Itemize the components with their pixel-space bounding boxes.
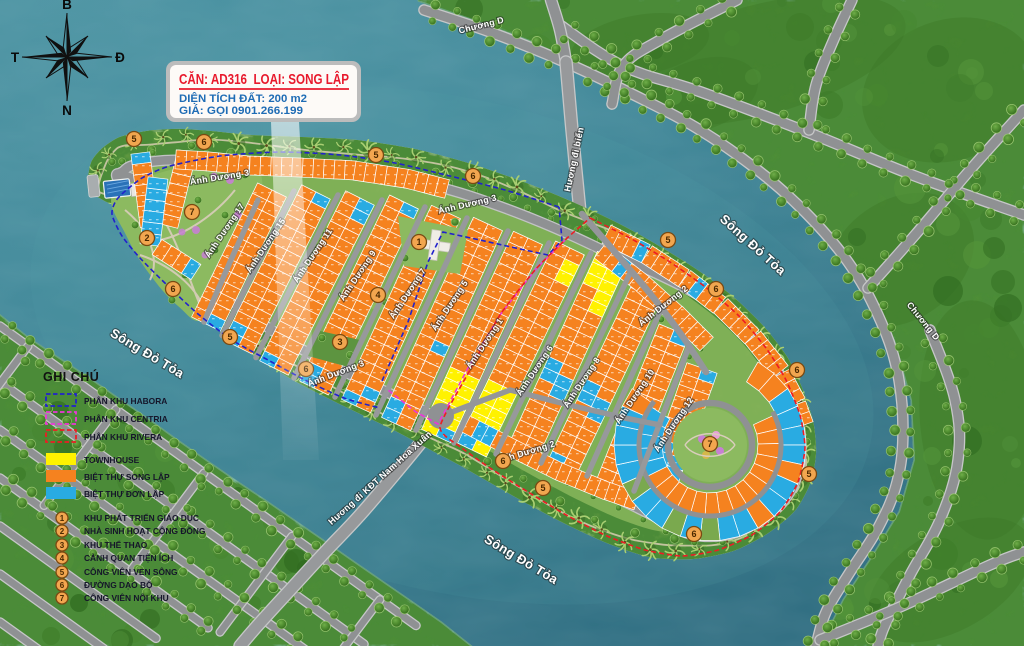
svg-text:KHU THỂ THAO: KHU THỂ THAO: [84, 539, 148, 550]
svg-text:NHÀ SINH HOẠT CỘNG ĐỒNG: NHÀ SINH HOẠT CỘNG ĐỒNG: [84, 525, 205, 536]
svg-text:1: 1: [60, 514, 65, 523]
svg-text:PHÂN KHU RIVERA: PHÂN KHU RIVERA: [84, 431, 162, 442]
svg-text:6: 6: [170, 284, 175, 294]
svg-text:CÔNG VIÊN NỘI KHU: CÔNG VIÊN NỘI KHU: [84, 592, 169, 603]
svg-text:3: 3: [60, 541, 65, 550]
svg-text:5: 5: [373, 150, 378, 160]
svg-text:7: 7: [189, 207, 194, 217]
svg-text:2: 2: [144, 233, 149, 243]
svg-text:TOWNHOUSE: TOWNHOUSE: [84, 455, 140, 465]
svg-text:5: 5: [131, 134, 136, 144]
svg-text:CẢNH QUAN TIỆN ÍCH: CẢNH QUAN TIỆN ÍCH: [84, 552, 173, 563]
svg-text:6: 6: [201, 137, 206, 147]
svg-text:4: 4: [60, 554, 65, 563]
svg-text:5: 5: [665, 235, 670, 245]
svg-text:CĂN: AD316 LOẠI: SONG LẬP: CĂN: AD316 LOẠI: SONG LẬP: [179, 70, 349, 88]
svg-text:BIỆT THỰ ĐƠN LẬP: BIỆT THỰ ĐƠN LẬP: [84, 488, 165, 499]
svg-text:KHU PHÁT TRIỂN GIÁO DỤC: KHU PHÁT TRIỂN GIÁO DỤC: [84, 512, 199, 523]
svg-text:ĐƯỜNG DẠO BỘ: ĐƯỜNG DẠO BỘ: [84, 579, 153, 590]
svg-text:GHI CHÚ: GHI CHÚ: [43, 369, 99, 384]
svg-text:4: 4: [375, 290, 380, 300]
svg-text:7: 7: [60, 594, 65, 603]
svg-text:5: 5: [806, 469, 811, 479]
svg-text:6: 6: [470, 171, 475, 181]
svg-text:5: 5: [60, 568, 65, 577]
svg-text:PHÂN KHU HABORA: PHÂN KHU HABORA: [84, 395, 167, 406]
svg-text:1: 1: [416, 237, 421, 247]
svg-text:6: 6: [794, 365, 799, 375]
svg-text:BIỆT THỰ SONG LẬP: BIỆT THỰ SONG LẬP: [84, 471, 170, 482]
svg-text:GIÁ: GỌI 0901.266.199: GIÁ: GỌI 0901.266.199: [179, 104, 303, 117]
svg-text:7: 7: [707, 439, 712, 449]
svg-text:N: N: [62, 103, 72, 118]
svg-text:T: T: [11, 50, 20, 65]
svg-text:5: 5: [540, 483, 545, 493]
svg-text:6: 6: [60, 581, 65, 590]
svg-text:3: 3: [337, 337, 342, 347]
svg-text:6: 6: [713, 284, 718, 294]
svg-text:CÔNG VIÊN VEN SÔNG: CÔNG VIÊN VEN SÔNG: [84, 566, 178, 577]
svg-text:PHÂN KHU CENTRIA: PHÂN KHU CENTRIA: [84, 413, 168, 424]
svg-text:6: 6: [691, 529, 696, 539]
svg-text:DIỆN TÍCH ĐẤT: 200 m2: DIỆN TÍCH ĐẤT: 200 m2: [179, 92, 307, 105]
svg-text:2: 2: [60, 527, 65, 536]
svg-text:Đ: Đ: [115, 50, 125, 65]
svg-text:5: 5: [227, 332, 232, 342]
svg-text:6: 6: [500, 456, 505, 466]
svg-text:B: B: [62, 0, 72, 12]
